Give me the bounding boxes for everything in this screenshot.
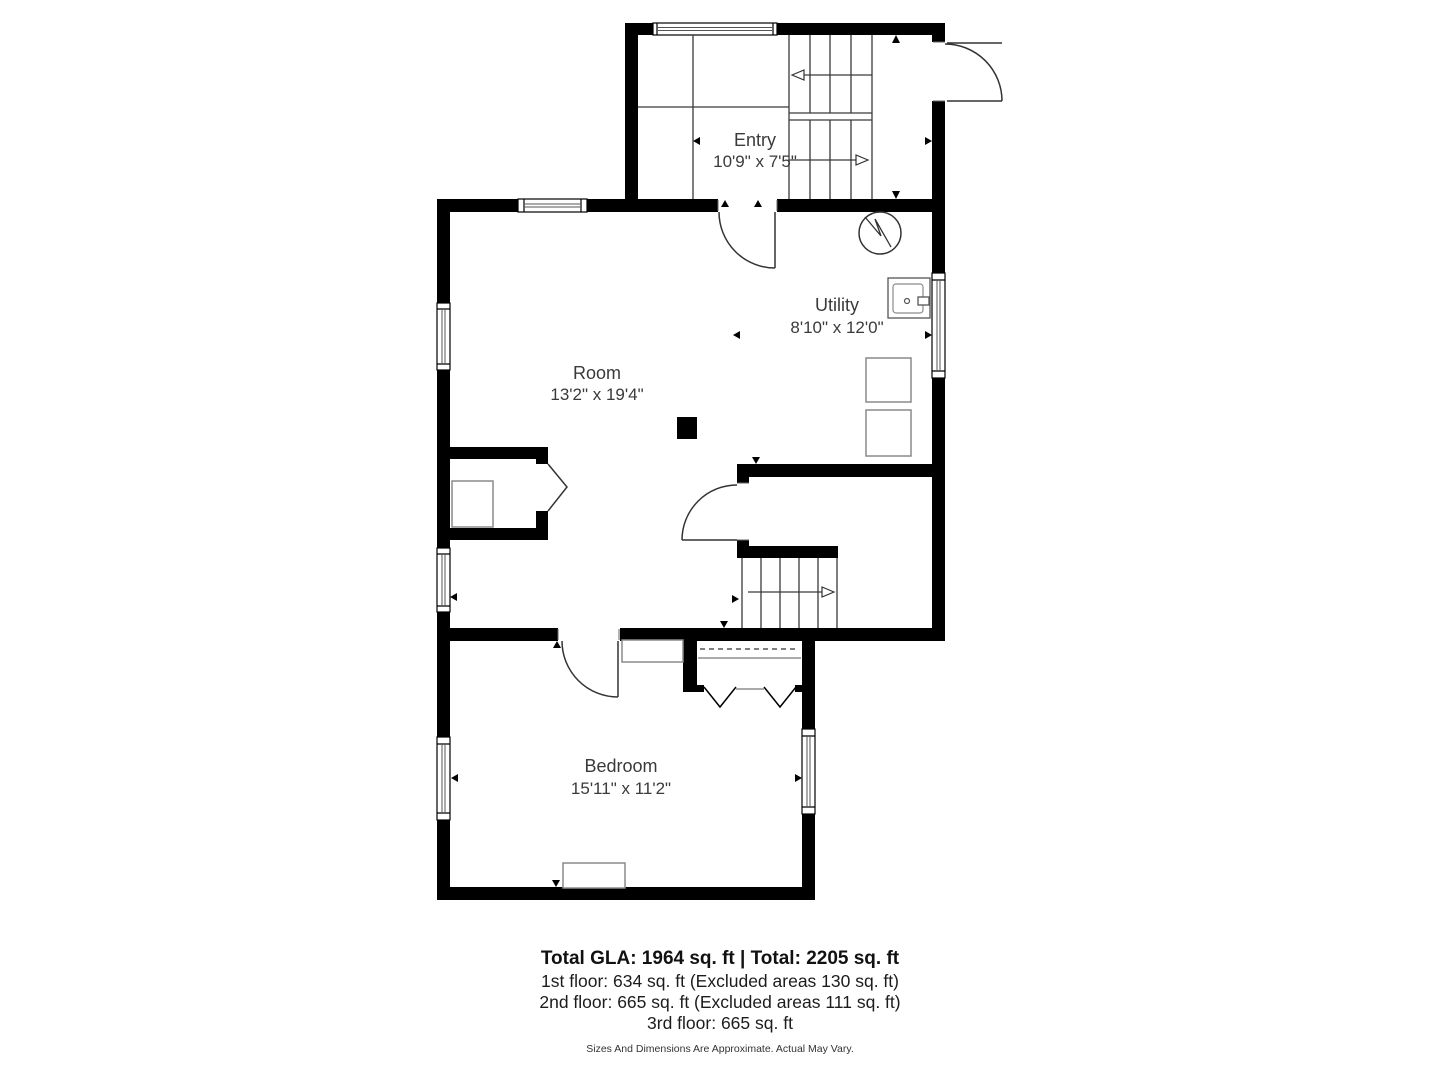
basement-staircase	[742, 558, 837, 628]
water-heater-icon	[859, 212, 901, 254]
washer-icon	[866, 358, 911, 402]
room-hall-door	[682, 483, 749, 540]
bifold-doors-icon	[704, 687, 796, 707]
support-column	[677, 417, 697, 439]
utility-dims: 8'10" x 12'0"	[790, 318, 883, 337]
dryer-icon	[866, 410, 911, 456]
bedroom-door	[558, 629, 619, 697]
fireplace-icon	[452, 464, 567, 527]
entry-label: Entry	[734, 130, 776, 150]
room-dims: 13'2" x 19'4"	[550, 385, 643, 404]
summary-floor3: 3rd floor: 665 sq. ft	[647, 1013, 793, 1033]
entry-top-window	[653, 23, 777, 35]
dresser	[563, 863, 625, 888]
floor-plan: Entry 10'9" x 7'5" Utility 8'10" x 12'0"…	[0, 0, 1440, 1080]
bedroom-label: Bedroom	[584, 756, 657, 776]
summary-disclaimer: Sizes And Dimensions Are Approximate. Ac…	[586, 1043, 853, 1055]
bedroom-closet	[698, 649, 801, 707]
entry-utility-door	[718, 200, 777, 268]
bedroom-right-window	[802, 729, 815, 814]
bedroom-left-window	[437, 737, 450, 820]
entry-dims: 10'9" x 7'5"	[713, 152, 797, 171]
utility-right-window	[932, 273, 945, 378]
summary-floor2: 2nd floor: 665 sq. ft (Excluded areas 11…	[539, 992, 900, 1012]
summary-title: Total GLA: 1964 sq. ft | Total: 2205 sq.…	[541, 948, 900, 969]
bedroom-dims: 15'11" x 11'2"	[571, 779, 671, 798]
summary-block: Total GLA: 1964 sq. ft | Total: 2205 sq.…	[539, 948, 900, 1055]
utility-sink-icon	[888, 278, 930, 318]
room-label: Room	[573, 363, 621, 383]
exterior-walls	[437, 23, 945, 900]
room-top-window	[518, 199, 587, 212]
interior-walls	[443, 417, 932, 692]
room-left-window-lower	[437, 548, 450, 612]
front-door	[933, 42, 1002, 101]
room-left-window-upper	[437, 303, 450, 370]
cabinet	[622, 640, 683, 662]
utility-label: Utility	[815, 295, 859, 315]
summary-floor1: 1st floor: 634 sq. ft (Excluded areas 13…	[541, 971, 899, 991]
entry-staircase	[638, 35, 872, 199]
